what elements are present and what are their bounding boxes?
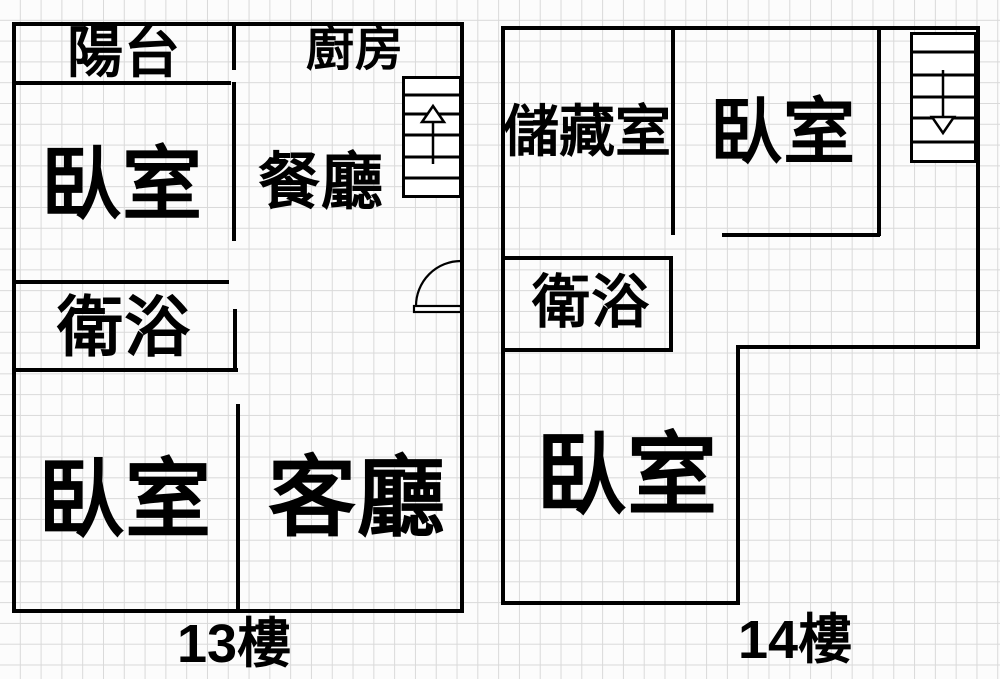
f13-wall-divider-upper-a xyxy=(232,24,236,70)
f14-wall-outer-top xyxy=(501,26,980,30)
f13-staircase xyxy=(402,76,462,198)
f14-floor-number: 14 xyxy=(738,610,798,670)
f14-wall-bath-bottom xyxy=(503,348,673,352)
f14-wall-inner-right xyxy=(736,345,740,605)
f13-room-label-dining: 餐廳 xyxy=(258,152,384,214)
f13-room-label-balcony: 陽台 xyxy=(67,25,181,81)
f13-wall-divider-lower xyxy=(236,404,240,609)
f13-wall-bath-bottom xyxy=(14,368,238,372)
f13-wall-bath-top xyxy=(14,280,229,284)
f14-wall-outer-bottom xyxy=(501,601,740,605)
f13-room-label-bedroom-upper: 臥室 xyxy=(41,145,203,225)
f14-wall-bath-top xyxy=(503,256,673,260)
f14-room-label-bathroom: 衛浴 xyxy=(532,274,650,332)
f13-floor-suffix: 樓 xyxy=(237,614,291,674)
f13-room-label-living: 客廳 xyxy=(268,454,446,542)
f13-wall-outer-left xyxy=(12,22,16,613)
f14-wall-storage-divider xyxy=(671,28,675,235)
floor-plan-canvas: 陽台 廚房 臥室 餐廳 衛浴 臥室 客廳 13樓 xyxy=(0,0,1000,679)
f13-wall-bath-right xyxy=(233,309,237,371)
f14-wall-notch xyxy=(736,345,980,349)
f14-room-label-bedroom-upper: 臥室 xyxy=(710,97,856,169)
f13-door-swing-icon xyxy=(412,257,465,315)
f14-wall-bath-right xyxy=(669,256,673,352)
f13-room-label-kitchen: 廚房 xyxy=(306,26,404,74)
f14-floor-suffix: 樓 xyxy=(798,610,852,670)
f13-floor-label: 13樓 xyxy=(177,617,291,671)
f13-floor-number: 13 xyxy=(177,614,237,674)
f14-floor-label: 14樓 xyxy=(738,613,852,667)
f13-room-label-bathroom: 衛浴 xyxy=(57,294,191,360)
f14-room-label-storage: 儲藏室 xyxy=(503,104,671,160)
f14-staircase xyxy=(910,32,977,163)
f13-room-label-bedroom-lower: 臥室 xyxy=(38,457,212,543)
f13-wall-divider-upper-b xyxy=(232,82,236,241)
f14-wall-bedroom-right xyxy=(877,28,881,236)
f14-wall-bedroom-bottom xyxy=(722,233,880,237)
f14-room-label-bedroom-lower: 臥室 xyxy=(536,431,718,521)
f13-wall-outer-bottom xyxy=(12,609,464,613)
